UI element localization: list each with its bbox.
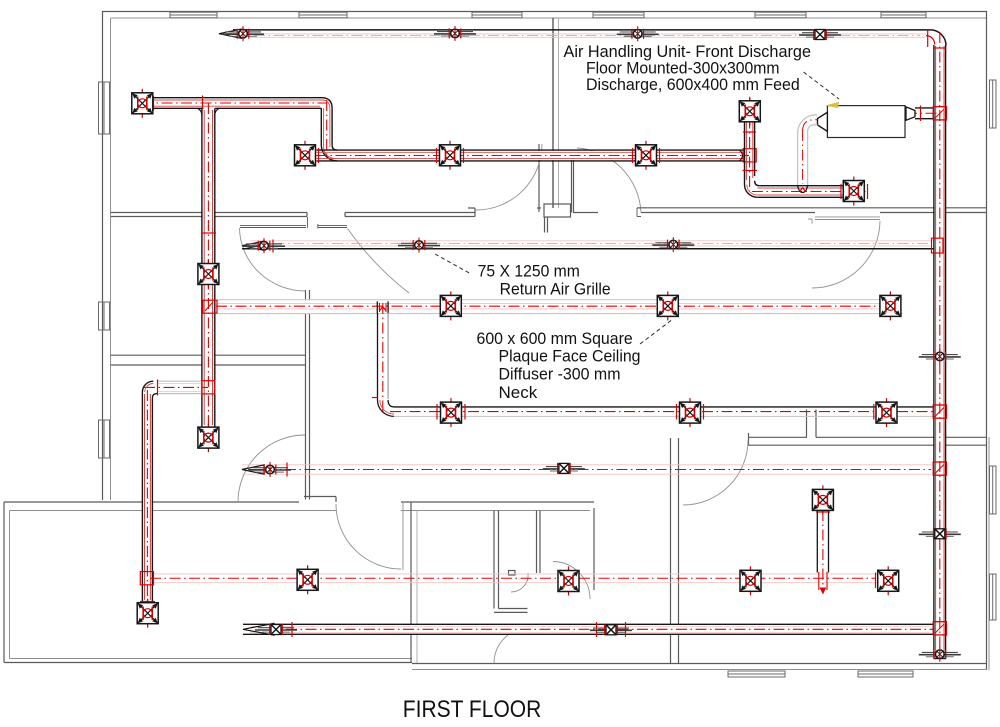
svg-text:75 X 1250 mm: 75 X 1250 mm [478, 262, 580, 281]
svg-text:Plaque Face Ceiling: Plaque Face Ceiling [499, 346, 641, 365]
svg-text:600 x 600 mm Square: 600 x 600 mm Square [477, 329, 633, 348]
svg-text:Diffuser -300 mm: Diffuser -300 mm [499, 364, 621, 383]
svg-text:FIRST FLOOR: FIRST FLOOR [403, 696, 542, 723]
svg-text:Return Air Grille: Return Air Grille [500, 280, 611, 299]
svg-text:Discharge, 600x400 mm Feed: Discharge, 600x400 mm Feed [586, 75, 800, 94]
svg-text:Neck: Neck [499, 383, 538, 402]
